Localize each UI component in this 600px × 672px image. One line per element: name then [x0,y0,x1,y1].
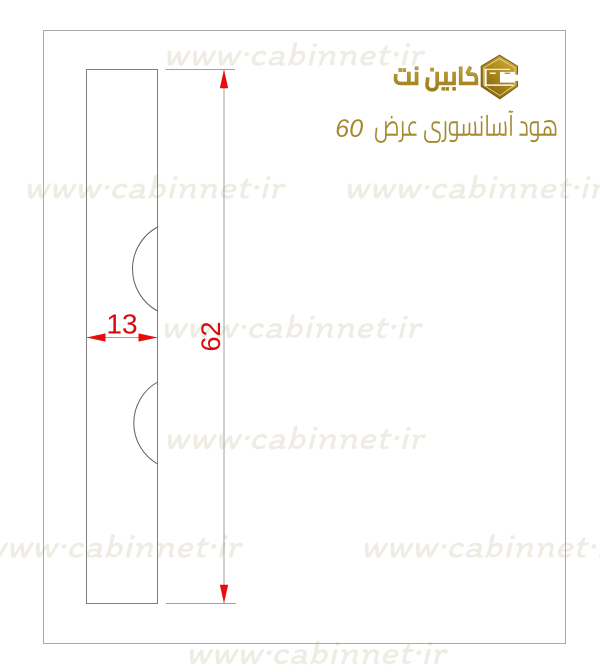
svg-text:13: 13 [106,309,137,340]
svg-text:62: 62 [196,321,226,351]
svg-text:60: 60 [335,115,363,143]
